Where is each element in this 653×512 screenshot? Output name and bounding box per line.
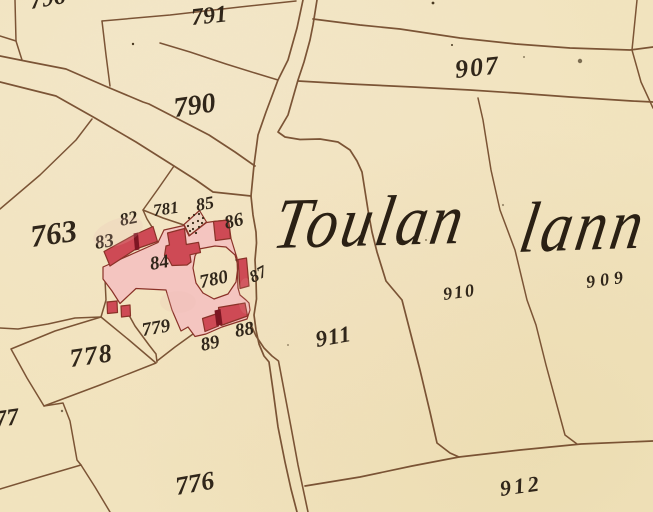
- svg-text:907: 907: [454, 50, 502, 84]
- svg-text:790: 790: [172, 87, 218, 124]
- svg-text:84: 84: [148, 251, 170, 275]
- svg-text:791: 791: [190, 1, 229, 31]
- svg-text:778: 778: [68, 338, 115, 373]
- svg-text:781: 781: [152, 198, 180, 220]
- svg-text:763: 763: [28, 213, 79, 254]
- svg-text:85: 85: [194, 192, 215, 215]
- svg-text:lann: lann: [514, 183, 652, 268]
- svg-text:Toulan: Toulan: [268, 179, 473, 264]
